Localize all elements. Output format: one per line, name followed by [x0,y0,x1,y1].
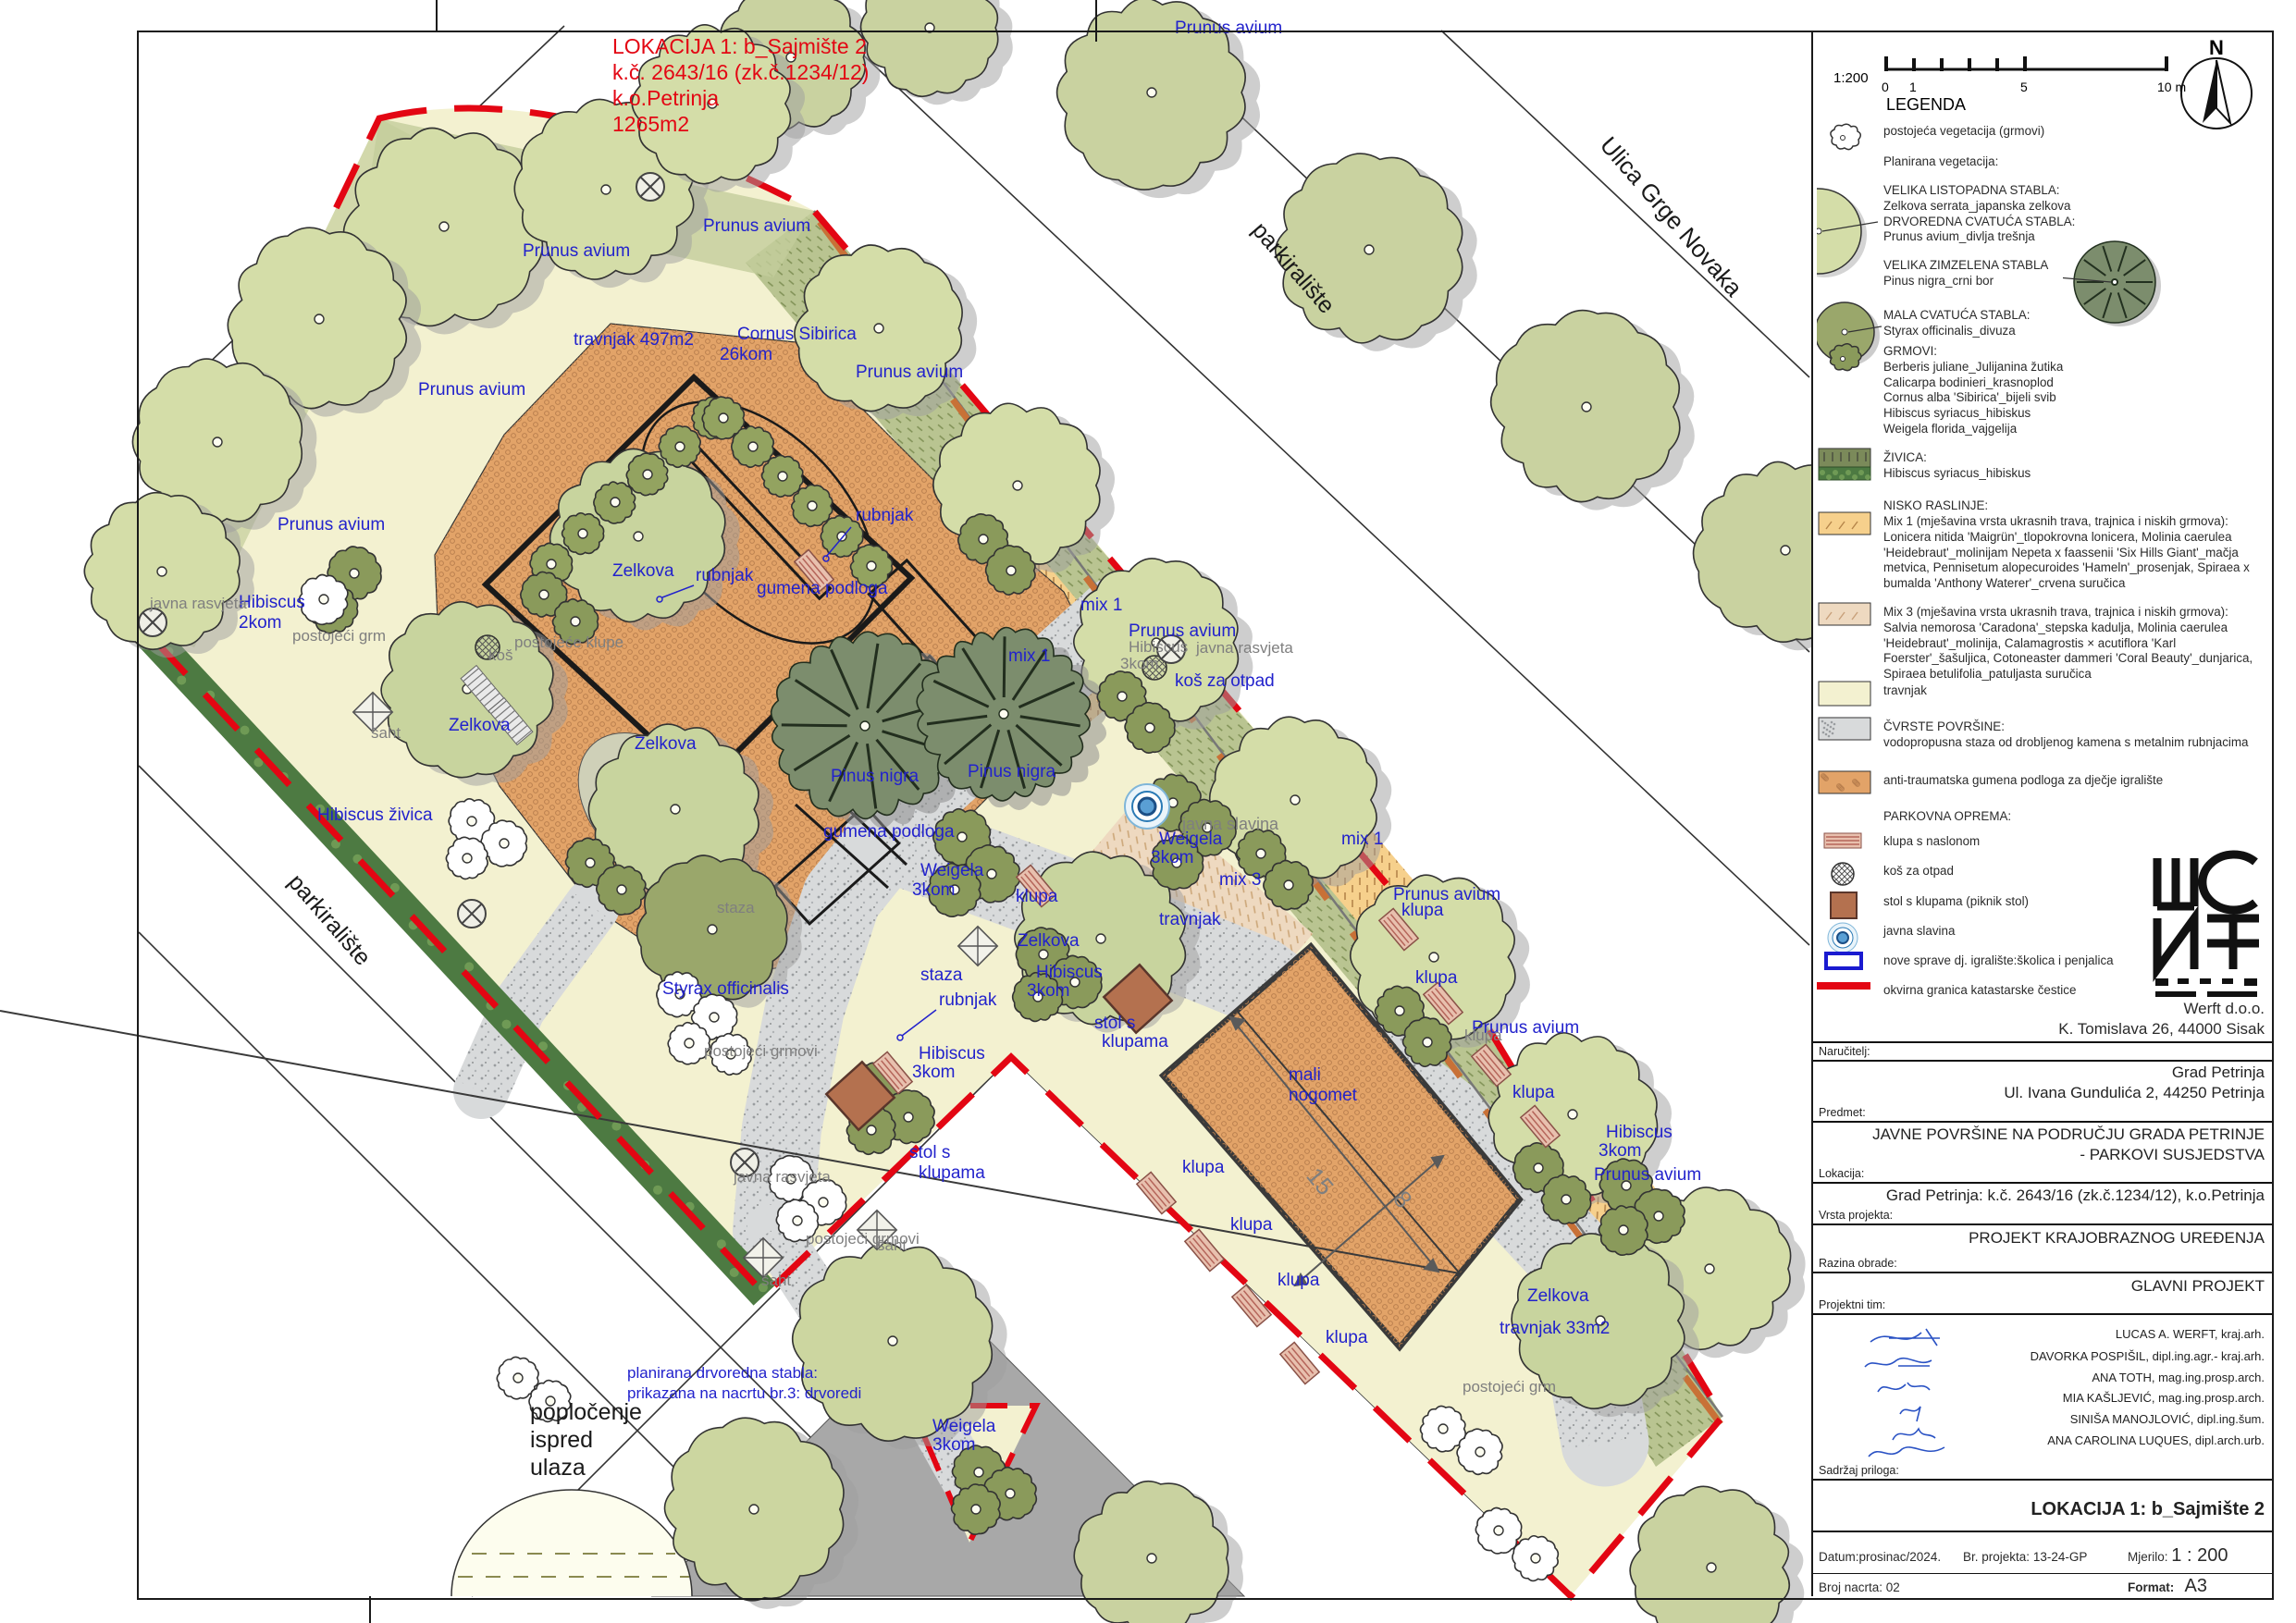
plan-label: mix 1 [1008,646,1050,666]
plan-label: javna slavina [1181,815,1279,833]
plan-label: Prunus avium [418,380,525,400]
plan-label: stol s [1094,1014,1135,1033]
plan-label: Pinus nigra [968,762,1055,781]
legend-text: Spiraea betulifolia_patuljasta suručica [1883,667,2253,682]
plan-label: javna rasvjeta [149,595,247,612]
team-5: SINIŠA MANOJLOVIĆ, dipl.ing.šum. [2070,1412,2265,1426]
legend-text: PARKOVNA OPREMA: [1883,809,2011,825]
plan-label: prikazana na nacrtu br.3: drvoredi [627,1384,861,1402]
plan-label: Prunus avium [856,363,963,382]
plan-label: klupa [1182,1158,1225,1177]
project-type: PROJEKT KRAJOBRAZNOG UREĐENJA [1969,1229,2265,1248]
plan-label: Zelkova [612,561,674,581]
plan-label: 3kom [1151,848,1193,867]
rubber-icon [1817,769,1874,804]
legend-text: vodopropusna staza od drobljenog kamena … [1883,735,2249,751]
plan-label: Hibiscus [239,593,305,612]
plan-label: javna rasvjeta [1195,639,1293,657]
plan-label: Pinus nigra [831,767,919,786]
legend-text: bumalda 'Anthony Waterer'_crvena suručic… [1883,576,2250,592]
plan-label: postojeći grm [292,627,386,645]
team-3: ANA TOTH, mag.ing.prosp.arch. [2092,1371,2265,1384]
legend-text: okvirna granica katastarske čestice [1883,983,2076,999]
legend-text: MALA CVATUĆA STABLA: [1883,308,2031,324]
legend-text: postojeća vegetacija (grmovi) [1883,124,2044,140]
plan-label: rubnjak [939,990,997,1010]
legend-text: Hibiscus syriacus_hibiskus [1883,406,2063,422]
plan-label: rubnjak [696,566,754,585]
tree-large-icon [1817,179,1878,293]
contents-label: Sadržaj priloga: [1819,1464,1899,1477]
plan-label: Prunus avium [703,216,810,236]
stage-label: Razina obrade: [1819,1257,1897,1270]
legend-text: Cornus alba 'Sibirica'_bijeli svib [1883,390,2063,406]
plan-label: gumena podloga [823,822,955,842]
plan-label: LOKACIJA 1: b_Sajmište 2 [612,34,867,58]
plan-label: Styrax officinalis [662,979,789,999]
plan-label: ispred [530,1427,593,1453]
team-6: ANA CAROLINA LUQUES, dipl.arch.urb. [2047,1433,2265,1447]
company-name: Werft d.o.o. [2183,1002,2265,1017]
plan-label: staza [920,965,963,985]
legend-text: Mix 1 (mješavina vrsta ukrasnih trava, t… [1883,514,2250,530]
plan-label: 3kom [932,1435,975,1455]
plan-label: klupama [1102,1032,1168,1051]
plan-label: staza [717,899,755,916]
plan-label: Hibiscus [919,1044,985,1064]
plan-label: Zelkova [449,716,511,735]
company-address: K. Tomislava 26, 44000 Sisak [2058,1022,2265,1038]
client-address: Ul. Ivana Gundulića 2, 44250 Petrinja [2004,1084,2265,1102]
team-4: MIA KAŠLJEVIĆ, mag.ing.prosp.arch. [2063,1391,2265,1405]
equip-icon [1817,950,1874,978]
plan-label: Weigela [920,861,984,880]
plan-label: šaht [877,1236,907,1254]
scale-0: 0 [1882,80,1889,94]
plan-label: Prunus avium [1175,18,1282,38]
plan-label: 3kom [1120,655,1159,672]
plan-label: k.o.Petrinja [612,86,719,110]
contents-value: LOKACIJA 1: b_Sajmište 2 [2031,1499,2265,1520]
street-light [636,173,664,201]
client-label: Naručitelj: [1819,1045,1870,1058]
plan-label: koš za otpad [1175,671,1275,691]
plan-label: mix 1 [1341,830,1383,849]
plan-label: Weigela [932,1417,996,1436]
legend-text: Prunus avium_divlja trešnja [1883,229,2075,245]
bench-icon [1817,830,1874,857]
legend-text: ŽIVICA: [1883,450,2031,466]
plan-label: klupa [1326,1328,1368,1347]
bin-icon [1817,860,1874,892]
plan-label: klupa [1464,1027,1502,1044]
shrub-icon [1817,340,1872,386]
plan-label: mali [1289,1065,1321,1085]
team-1: LUCAS A. WERFT, kraj.arh. [2116,1327,2265,1341]
legend-text: Calicarpa bodinieri_krasnoplod [1883,375,2063,391]
legend-text: Hibiscus syriacus_hibiskus [1883,466,2031,482]
plan-label: Zelkova [635,734,697,754]
subject-1: JAVNE POVRŠINE NA PODRUČJU GRADA PETRINJ… [1872,1125,2265,1144]
legend-title: LEGENDA [1886,95,1966,114]
plan-label: klupa [1016,887,1058,906]
plan-label: mix 1 [1080,596,1122,615]
plan-label: 2kom [239,613,281,633]
team-2: DAVORKA POSPIŠIL, dipl.ing.agr.- kraj.ar… [2031,1349,2265,1363]
project-type-label: Vrsta projekta: [1819,1209,1893,1222]
planting-arc [451,1490,692,1596]
scale-field: Mjerilo: 1 : 200 [2128,1548,2228,1566]
plan-label: klupa [1415,968,1458,988]
subject-2: - PARKOVI SUSJEDSTVA [2080,1146,2265,1164]
legend-text: VELIKA LISTOPADNA STABLA: [1883,183,2075,199]
redline-icon [1817,979,1874,997]
plan-label: stol s [909,1143,950,1162]
signatures [1852,1325,2000,1464]
legend-text: Pinus nigra_crni bor [1883,274,2048,289]
scale-ratio: 1:200 [1833,70,1869,86]
plan-label: Prunus avium [278,515,385,535]
plan-label: klupa [1512,1083,1555,1102]
legend-text: 'Heidebraut'_molinija, Calamagrostis × a… [1883,636,2253,652]
scale-5: 5 [2020,80,2028,94]
plan-label: Prunus avium [1594,1165,1701,1185]
water-tap [1125,784,1169,829]
hedge-icon [1817,447,1874,490]
legend-text: VELIKA ZIMZELENA STABLA [1883,258,2048,274]
north-arrow: N [2181,36,2252,129]
plan-label: Zelkova [1018,931,1080,951]
subject-label: Predmet: [1819,1106,1866,1119]
legend-text: Weigela florida_vajgelija [1883,422,2063,437]
plan-label: gumena podloga [757,579,888,598]
shrub-white-icon [1817,120,1872,162]
scale-1: 1 [1909,80,1917,94]
plan-label: Cornus Sibirica [737,325,857,344]
project-no: Br. projekta: 13-24-GP [1963,1550,2087,1566]
plan-label: 1265m2 [612,112,689,136]
plan-label: Hibiscus [1606,1123,1673,1142]
location-label: Lokacija: [1819,1167,1864,1180]
svg-text:N: N [2209,36,2224,59]
plan-label: Hibiscus [1036,963,1103,982]
mix1-icon [1817,510,1874,545]
legend-text: koš za otpad [1883,864,1954,879]
street-light [458,900,486,928]
plan-label: Ulica Grge Novaka [1595,131,1748,302]
drawing-sheet: LOKACIJA 1: b_Sajmište 2k.č. 2643/16 (zk… [0,0,2296,1623]
legend-text: 'Heidebraut'_molinijam Nepeta x faasseni… [1883,546,2250,561]
legend-text: Foerster'_šašuljica, Cotoneaster dammeri… [1883,651,2253,667]
werft-logo [2146,849,2266,1006]
plan-label: koš [488,646,512,664]
legend-text: Zelkova serrata_japanska zelkova [1883,199,2075,215]
legend-text: javna slavina [1883,924,1955,940]
plan-label: mix 3 [1219,870,1261,890]
plan-label: Zelkova [1527,1286,1589,1306]
legend-panel: 1:200 0 1 5 10 m LEGENDA N postojeća veg… [1811,31,2274,1596]
legend-text: DRVOREDNA CVATUĆA STABLA: [1883,215,2075,230]
plan-label: javna rasvjeta [733,1168,831,1186]
format-field: Format: A3 [2128,1579,2207,1596]
street-light [139,609,167,636]
plan-label: Hibiscus živica [317,805,433,825]
lawn-icon [1817,680,1874,716]
plan-label: postojeći grm [1463,1378,1556,1396]
legend-text: Planirana vegetacija: [1883,154,1998,170]
location-value: Grad Petrinja: k.č. 2643/16 (zk.č.1234/1… [1886,1187,2265,1205]
plan-label: planirana drvoredna stabla: [627,1364,818,1382]
legend-text: Salvia nemorosa 'Caradona'_stepska kadul… [1883,621,2253,636]
legend-text: NISKO RASLINJE: [1883,498,1988,514]
legend-text: klupa s naslonom [1883,834,1980,850]
date: Datum:prosinac/2024. [1819,1550,1941,1566]
plan-label: Prunus avium [523,241,630,261]
plan-label: Hibiscus [1129,638,1188,656]
legend-text: Lonicera nitida 'Maigrün'_tlopokrovna lo… [1883,530,2250,546]
team-label: Projektni tim: [1819,1298,1885,1311]
plan-label: klupa [1278,1271,1320,1290]
legend-text: ČVRSTE POVRŠINE: [1883,719,2249,735]
legend-text: travnjak [1883,683,1927,699]
legend-text: GRMOVI: [1883,344,2063,360]
plan-label: 26kom [720,345,772,364]
legend-text: Mix 3 (mješavina vrsta ukrasnih trava, t… [1883,605,2253,621]
legend-text: stol s klupama (piknik stol) [1883,894,2029,910]
gravel-icon [1817,716,1874,750]
legend-text: anti-traumatska gumena podloga za dječje… [1883,773,2163,789]
plan-label: 3kom [1599,1141,1641,1161]
plan-label: postojeće klupe [514,633,623,651]
stage-value: GLAVNI PROJEKT [2131,1277,2265,1296]
plan-label: klupama [919,1163,985,1183]
plan-label: nogomet [1289,1086,1358,1105]
legend-text: metvica, Pennisetum alopecuroides 'Hamel… [1883,560,2250,576]
mix3-icon [1817,601,1874,635]
plan-label: postojeći grmovi [704,1042,818,1060]
plan-label: rubnjak [856,506,914,525]
plan-label: ulaza [530,1455,586,1481]
legend-text: Styrax officinalis_divuza [1883,324,2031,339]
plan-label: šaht [371,724,401,742]
plan-label: travnjak 497m2 [574,330,694,350]
plan-label: klupa [1230,1215,1273,1235]
legend-text: Berberis juliane_Julijanina žutika [1883,360,2063,375]
client-name: Grad Petrinja [2172,1064,2265,1082]
plan-label: 3kom [912,1063,955,1082]
werft-logo-text [2155,978,2257,997]
drawing-no: Broj nacrta: 02 [1819,1580,1900,1596]
plan-label: 3kom [1027,981,1069,1001]
plan-label: k.č. 2643/16 (zk.č.1234/12) [612,60,869,84]
plan-label: 3kom [912,880,955,900]
plan-label: klupa [1401,901,1444,920]
plan-label: travnjak 33m2 [1500,1319,1610,1338]
scalebar-compass: 1:200 0 1 5 10 m LEGENDA N [1813,31,2274,132]
plan-label: travnjak [1159,910,1221,929]
legend-text: nove sprave dj. igralište:školica i penj… [1883,953,2114,969]
plan-label: popločenje [530,1399,642,1425]
plan-label: šaht [761,1272,791,1289]
